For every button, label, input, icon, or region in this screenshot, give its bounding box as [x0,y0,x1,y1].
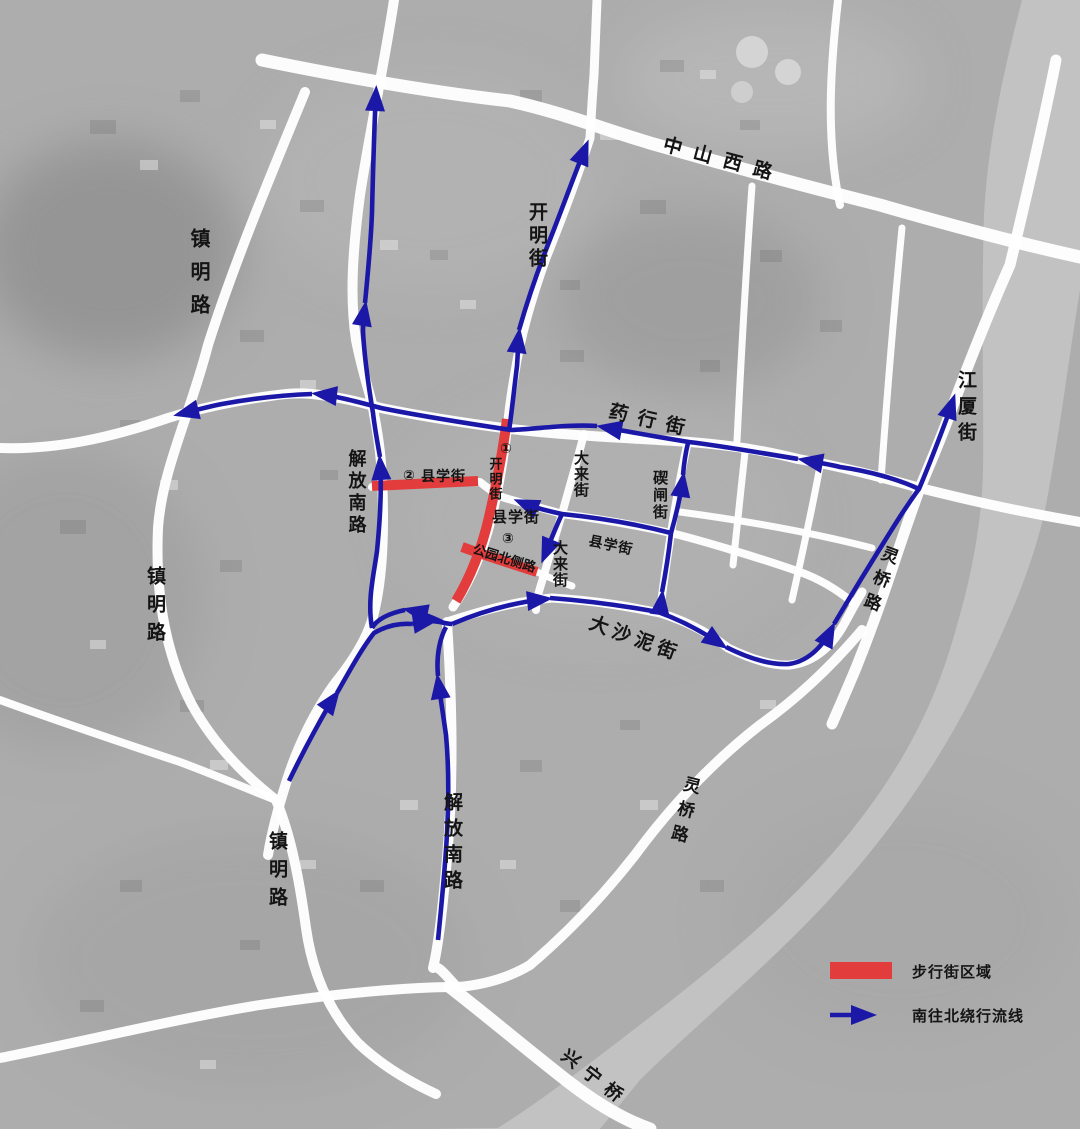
label-zhenming-lu-1: 镇明路 [187,227,211,327]
label-zhenming-lu-2: 镇明路 [144,565,166,650]
legend-pedestrian-label: 步行街区域 [912,963,992,981]
label-xianxue-jie-center: 县学街 [492,508,540,526]
map-svg: 中山西路 开明街 镇明路 药行街 江厦街 解放南路 ② 县学街 ① 开明街 大来… [0,0,1080,1129]
label-zone1-marker: ① [500,441,512,457]
legend-pedestrian-swatch [830,962,892,979]
detour-map: 中山西路 开明街 镇明路 药行街 江厦街 解放南路 ② 县学街 ① 开明街 大来… [0,0,1080,1129]
label-xianxue-jie-red: 县学街 [421,468,466,485]
label-kaiming-jie-north: 开明街 [526,202,549,271]
label-zone3-marker: ③ [502,531,514,547]
label-zhenming-lu-3: 镇明路 [266,830,288,915]
label-qizha-jie: 碶闸街 [651,469,669,521]
label-jiangxia-jie: 江厦街 [955,370,978,448]
label-jiefang-nan-lu-1: 解放南路 [346,448,368,537]
route-qizha-up-1 [660,596,662,612]
label-zone2-marker: ② [403,468,415,484]
route-junction-east-link [432,621,452,624]
label-dalai-jie-2: 大来街 [551,539,569,588]
legend-detour-label: 南往北绕行流线 [912,1007,1024,1025]
label-kaiming-jie-red: 开明街 [487,457,504,502]
label-jiefang-nan-lu-2: 解放南路 [441,791,464,896]
label-dalai-jie-1: 大来街 [572,449,590,498]
route-junction-east-start [412,621,432,624]
